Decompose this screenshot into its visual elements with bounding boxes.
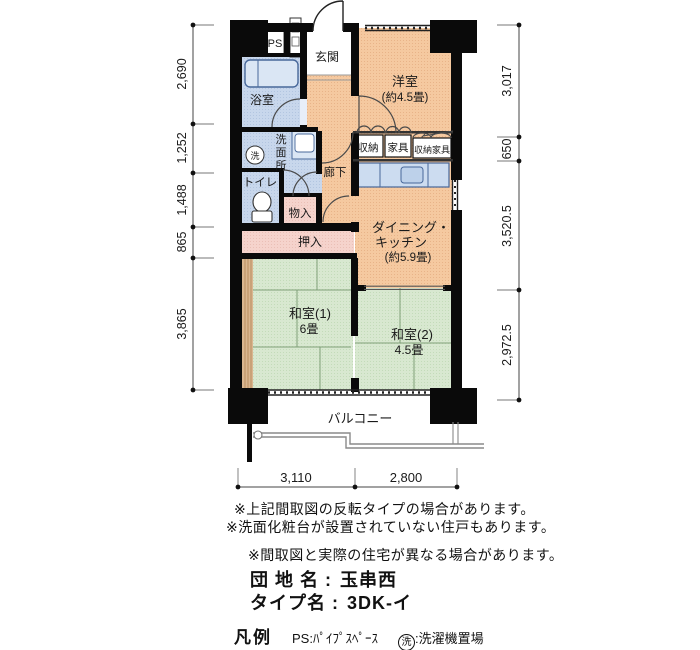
bathtub bbox=[245, 60, 298, 87]
label-bathroom: 浴室 bbox=[250, 92, 274, 107]
legend-ps: PS:ﾊﾟｲﾌﾟｽﾍﾟｰｽ bbox=[292, 628, 378, 647]
stove bbox=[401, 167, 423, 183]
estate-label: 団 地 名 : bbox=[250, 570, 332, 590]
note-2: ※洗面化粧台が設置されていない住戸もあります。 bbox=[226, 517, 555, 537]
label-dk2: キッチン bbox=[375, 235, 427, 250]
label-dk1: ダイニング・ bbox=[372, 220, 450, 235]
toilet-bowl bbox=[253, 192, 271, 212]
legend-washer-desc: :洗濯機置場 bbox=[415, 631, 484, 646]
note-3: ※間取図と実際の住宅が異なる場合があります。 bbox=[248, 545, 563, 565]
label-balcony: バルコニー bbox=[328, 411, 393, 426]
legend: 凡例 PS:ﾊﾟｲﾌﾟｽﾍﾟｰｽ 洗:洗濯機置場 bbox=[234, 623, 484, 650]
label-dk-size: (約5.9畳) bbox=[385, 250, 432, 264]
label-ps: PS bbox=[268, 38, 283, 50]
estate-name: 玉串西 bbox=[340, 570, 397, 590]
dim-left-2: 1,252 bbox=[175, 132, 189, 163]
dimension-bottom: 3,110 2,800 bbox=[236, 468, 460, 489]
legend-title: 凡例 bbox=[234, 623, 272, 648]
label-genkan: 玄関 bbox=[315, 49, 339, 64]
label-yoshitsu-size: (約4.5畳) bbox=[382, 90, 429, 104]
label-yoshitsu: 洋室 bbox=[392, 74, 418, 89]
label-washitsu2: 和室(2) bbox=[391, 327, 433, 342]
label-monoire: 物入 bbox=[289, 206, 312, 220]
room-vestibule bbox=[302, 75, 357, 131]
label-toilet: トイレ bbox=[243, 177, 278, 189]
label-washroom-3: 所 bbox=[276, 159, 287, 172]
toilet-tank bbox=[252, 211, 272, 222]
label-washitsu1-size: 6畳 bbox=[300, 322, 319, 336]
dim-left-4: 865 bbox=[175, 232, 189, 253]
label-hallway: 廊下 bbox=[324, 165, 347, 179]
dim-right-2: 650 bbox=[500, 139, 514, 160]
dim-left-1: 2,690 bbox=[175, 58, 189, 89]
label-washitsu1: 和室(1) bbox=[289, 306, 331, 321]
dim-right-4: 2,972.5 bbox=[500, 324, 514, 366]
dim-left-3: 1,488 bbox=[175, 184, 189, 215]
label-storage-furniture: 収納家具 bbox=[414, 144, 450, 155]
dimension-left: 2,690 1,252 1,488 865 3,865 bbox=[175, 23, 214, 393]
label-washroom-1: 洗 bbox=[276, 133, 287, 146]
label-oshiire: 押入 bbox=[298, 235, 322, 249]
bath-doorway bbox=[300, 99, 307, 127]
type-name: 3DK-イ bbox=[347, 593, 412, 613]
label-washitsu2-size: 4.5畳 bbox=[395, 343, 424, 357]
dim-bottom-1: 3,110 bbox=[280, 470, 312, 485]
type-label: タイプ名 : bbox=[250, 593, 339, 613]
floorplan-page: 2,690 1,252 1,488 865 3,865 3,017 650 3,… bbox=[0, 0, 700, 650]
dim-right-3: 3,520.5 bbox=[500, 205, 514, 247]
dim-bottom-2: 2,800 bbox=[390, 470, 423, 485]
room-washroom-lobby bbox=[280, 171, 322, 196]
note-1: ※上記間取図の反転タイプの場合があります。 bbox=[234, 499, 535, 519]
label-washroom-2: 面 bbox=[276, 147, 287, 159]
dim-right-1: 3,017 bbox=[500, 65, 514, 96]
label-washer: 洗 bbox=[250, 150, 259, 161]
label-furniture: 家具 bbox=[388, 141, 409, 154]
type-name-line: タイプ名 :3DK-イ bbox=[250, 589, 412, 615]
label-storage: 収納 bbox=[358, 141, 379, 154]
entrance-door bbox=[313, 1, 343, 31]
legend-washer: 洗:洗濯機置場 bbox=[398, 628, 484, 650]
dimension-right: 3,017 650 3,520.5 2,972.5 bbox=[497, 23, 521, 403]
dim-left-5: 3,865 bbox=[175, 308, 189, 339]
washer-circle-icon: 洗 bbox=[398, 634, 415, 650]
